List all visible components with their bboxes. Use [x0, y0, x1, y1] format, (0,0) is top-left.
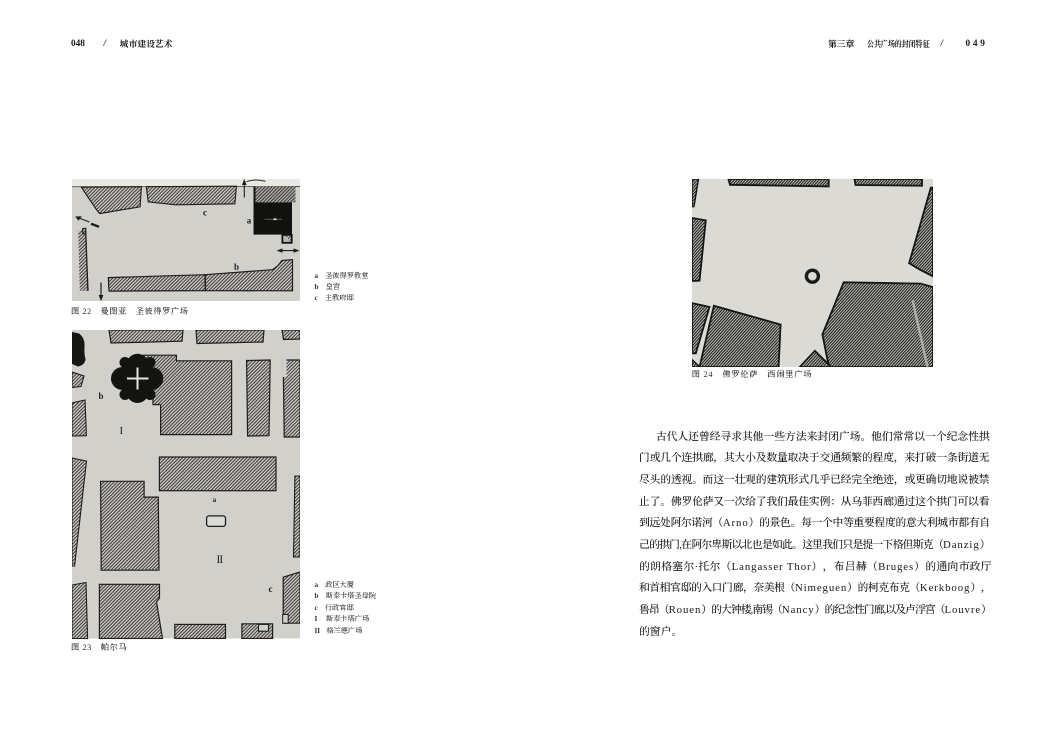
svg-text:b: b [98, 391, 103, 401]
svg-text:b: b [234, 262, 239, 272]
svg-text:c: c [268, 584, 272, 594]
svg-text:a: a [246, 215, 251, 225]
svg-text:c: c [203, 207, 207, 217]
svg-text:I: I [119, 425, 123, 437]
svg-text:a: a [212, 495, 216, 504]
